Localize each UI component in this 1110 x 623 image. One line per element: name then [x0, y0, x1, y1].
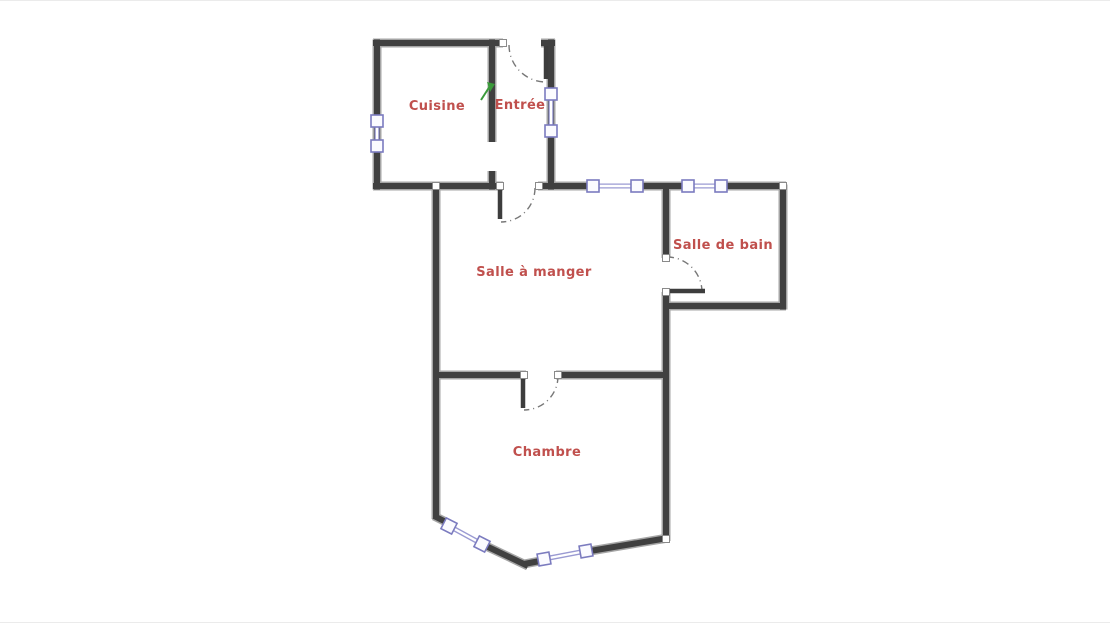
wall-node: [663, 255, 670, 262]
wall-node: [780, 183, 787, 190]
room-label-salle-a-manger: Salle à manger: [476, 265, 592, 280]
window-dining-top-icon: [587, 180, 643, 192]
floor-plan-canvas: Cuisine Entrée Salle à manger Salle de b…: [0, 0, 1110, 623]
room-label-salle-de-bain: Salle de bain: [673, 238, 773, 253]
wall-node: [663, 536, 670, 543]
room-label-chambre: Chambre: [513, 445, 581, 460]
floor-plan-svg: Cuisine Entrée Salle à manger Salle de b…: [0, 0, 1110, 623]
wall-node: [663, 289, 670, 296]
window-bedroom-diagonal-bottom-icon: [537, 544, 593, 566]
wall-node: [497, 183, 504, 190]
entrance-door-swing-arc: [509, 45, 546, 82]
wall-node: [521, 372, 528, 379]
dining-door-swing-arc: [501, 188, 535, 222]
top-edge-line: [0, 0, 1110, 1]
wall-node: [536, 183, 543, 190]
window-bathroom-top-icon: [682, 180, 727, 192]
window-bedroom-diagonal-left-icon: [441, 518, 490, 552]
wall-endpoint-nodes: [433, 40, 787, 543]
walls: [373, 40, 786, 567]
wall-node: [555, 372, 562, 379]
room-label-cuisine: Cuisine: [409, 99, 465, 114]
room-labels: Cuisine Entrée Salle à manger Salle de b…: [409, 98, 773, 460]
room-label-entree: Entrée: [495, 98, 546, 113]
bedroom-door-swing-arc: [524, 376, 558, 410]
wall-node: [433, 183, 440, 190]
wall-node: [500, 40, 507, 47]
bathroom-door-swing-arc: [667, 257, 702, 292]
